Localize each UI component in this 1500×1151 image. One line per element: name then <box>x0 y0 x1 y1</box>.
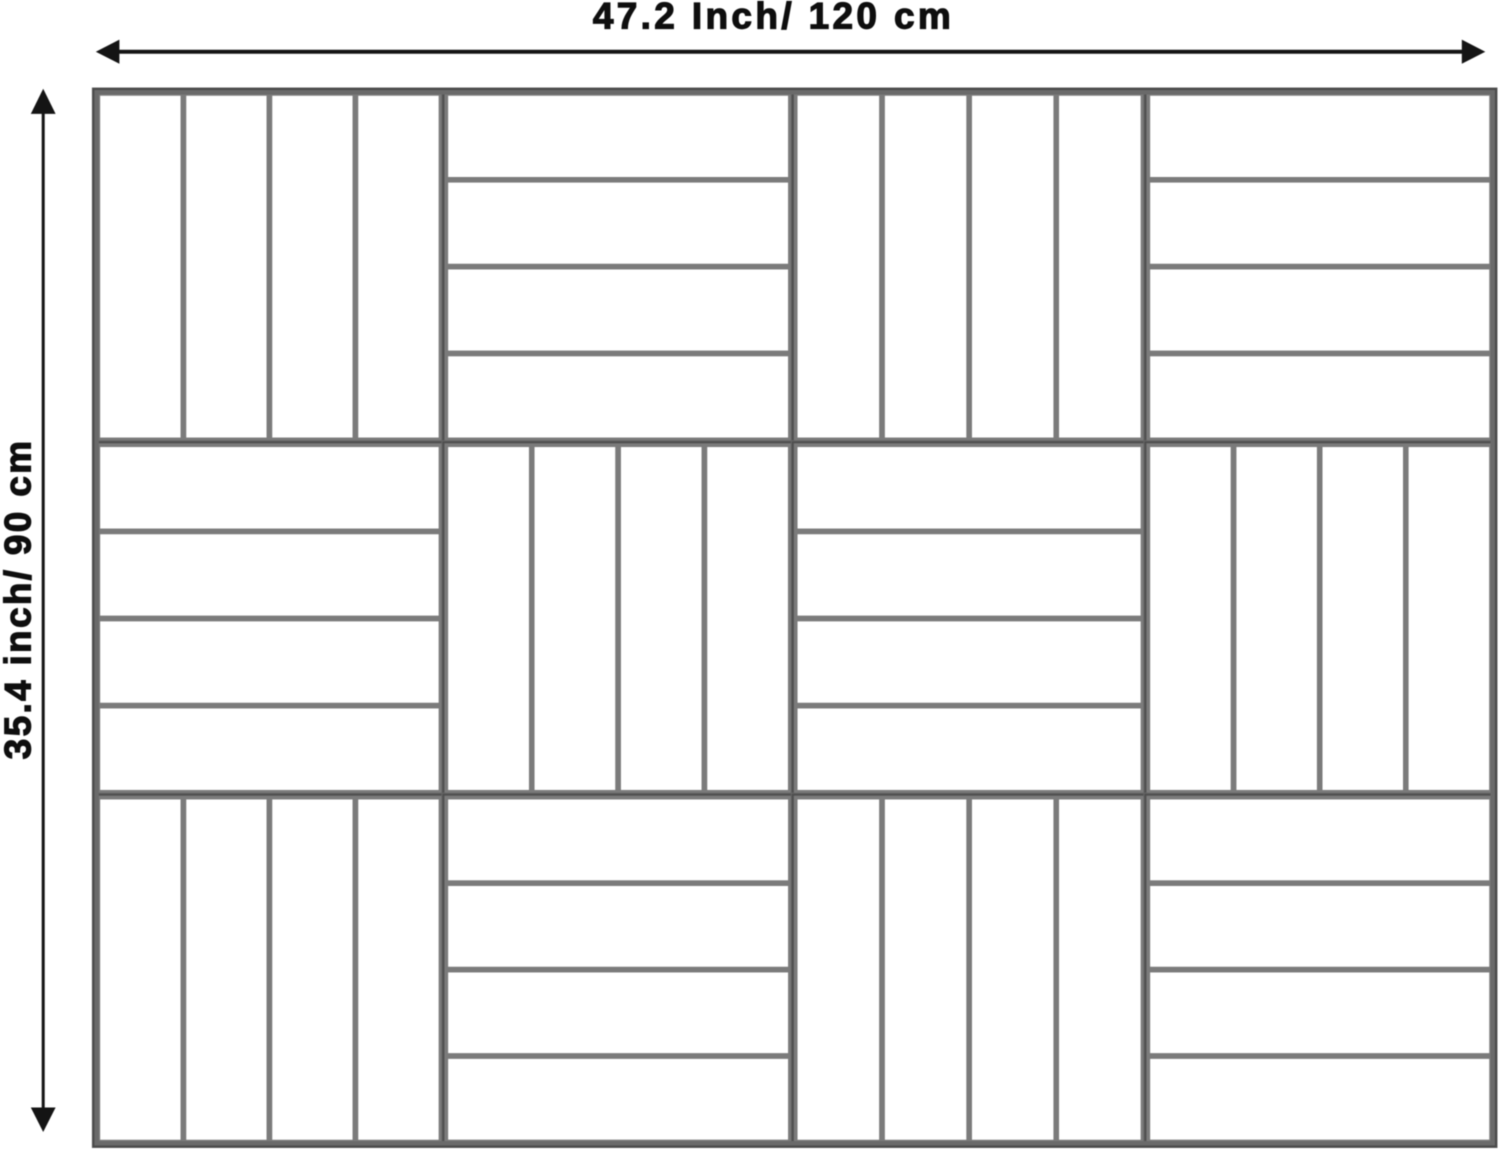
svg-text:47.2 Inch/ 120 cm: 47.2 Inch/ 120 cm <box>593 0 954 37</box>
svg-text:35.4 inch/ 90 cm: 35.4 inch/ 90 cm <box>0 439 39 760</box>
